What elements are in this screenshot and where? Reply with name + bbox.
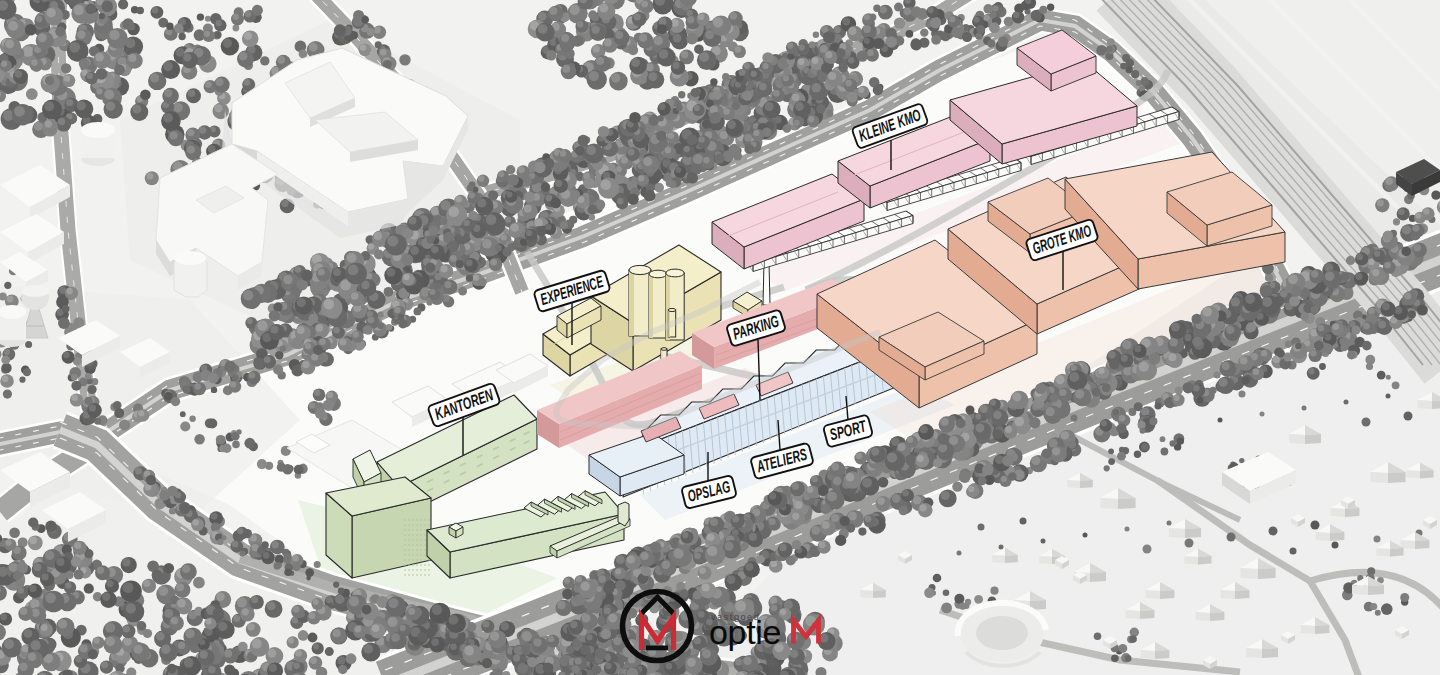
svg-text:optie: optie bbox=[709, 613, 781, 651]
